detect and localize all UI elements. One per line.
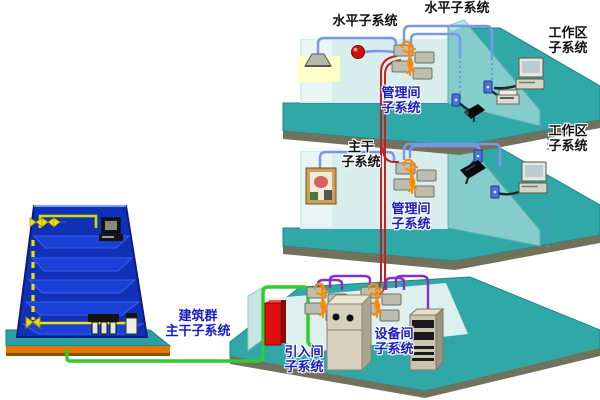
entrance-wall [248, 288, 262, 350]
desktop-computer-icon [516, 58, 544, 89]
wall-outlet-icon [484, 81, 492, 93]
wall-outlet-icon [452, 94, 460, 106]
distribution-frame-icon [88, 314, 119, 322]
entrance-facility-box-icon [265, 300, 286, 345]
pbx-cabinet-icon [327, 295, 371, 370]
label-horizontal-subsystem-right: 水平子系统 [420, 1, 494, 16]
label-management-subsystem-top: 管理间 子系统 [372, 86, 430, 117]
computer-icon [99, 218, 123, 241]
label-work-area-subsystem-mid: 工作区 子系统 [540, 124, 596, 155]
alarm-sphere-icon [352, 46, 365, 59]
middle-floor-platform [283, 140, 600, 270]
cylinder-cap [126, 313, 137, 318]
building-base-orange [6, 346, 170, 353]
label-entrance-room-subsystem: 引入间 子系统 [280, 345, 328, 376]
label-campus-backbone-subsystem: 建筑群 主干子系统 [158, 309, 238, 340]
label-horizontal-subsystem-left: 水平子系统 [330, 14, 400, 29]
printer-icon [497, 90, 519, 104]
label-work-area-subsystem-top: 工作区 子系统 [540, 26, 596, 57]
cabling-system-diagram: 水平子系统 水平子系统 工作区 子系统 管理间 子系统 工作区 子系统 主干 子… [0, 0, 600, 400]
building-base-shadow [6, 353, 170, 356]
desktop-computer-icon [519, 162, 547, 193]
wall-mounted-box-icon [306, 168, 336, 204]
building-group [6, 206, 170, 356]
label-equipment-room-subsystem: 设备间 子系统 [368, 327, 420, 358]
diagram-graphics [0, 0, 600, 400]
label-management-subsystem-mid: 管理间 子系统 [384, 202, 438, 233]
wall-outlet-icon [491, 186, 499, 198]
label-backbone-subsystem: 主干 子系统 [334, 140, 388, 171]
